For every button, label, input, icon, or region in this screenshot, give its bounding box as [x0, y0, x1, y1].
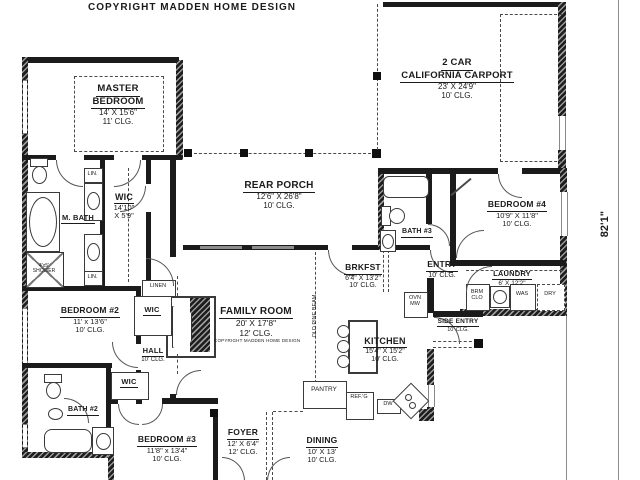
burner-icon [405, 394, 412, 401]
door-arc [176, 370, 201, 395]
room-label-brkfst: BRKFST 6'4" X 13'2" 10' CLG. [334, 263, 392, 290]
laundry-sink-bowl [493, 290, 507, 304]
room-label-bedroom2: BEDROOM #2 11' x 13'6" 10' CLG. [54, 306, 126, 334]
wall [419, 409, 431, 421]
side-entry-post [474, 339, 483, 348]
wall [383, 2, 565, 7]
wall [170, 394, 176, 404]
sink-bowl-icon [87, 243, 100, 261]
post [210, 409, 218, 417]
ovn-mw-label: OVN MW [405, 296, 425, 308]
porch-edge-line [184, 153, 376, 155]
room-label-bedroom3: BEDROOM #3 11'8" x 13'4" 10' CLG. [132, 435, 202, 463]
copyright-small: COPYRIGHT MADDEN HOME DESIGN [214, 338, 298, 343]
ceiling-break-dashed [177, 276, 179, 296]
window [23, 308, 27, 364]
window [559, 116, 566, 150]
sink-bowl-icon [96, 433, 111, 450]
room-label-bath3: BATH #3 [396, 228, 438, 238]
room-label-carport: 2 CAR CALIFORNIA CARPORT 23' X 24'9" 10'… [397, 58, 517, 101]
window [23, 424, 27, 448]
front-door-arc [267, 457, 290, 480]
beam-label: OLD PINE BEAM [312, 282, 320, 350]
room-label-bedroom4: BEDROOM #4 10'9" X 11'8" 10' CLG. [478, 200, 556, 228]
washer-label: WAS [512, 292, 532, 298]
room-label-side-entry: SIDE ENTRY 10' CLG. [434, 318, 482, 333]
door-arc [498, 174, 522, 198]
room-label-master: MASTER BEDROOM 14' X 15'6" 11' CLG. [77, 84, 159, 127]
overall-dimension-label: 82'1" [599, 199, 611, 249]
dw-label: DW [379, 402, 397, 408]
foyer-dining-dashed [266, 412, 268, 480]
wall [176, 60, 183, 160]
wall [558, 2, 566, 116]
wall [146, 160, 151, 184]
wall [433, 311, 483, 317]
porch-post [305, 149, 313, 157]
pantry-label: PANTRY [305, 386, 343, 393]
carport-dashed-line [500, 14, 562, 16]
room-label-hall: HALL 10' CLG. [134, 347, 172, 364]
door-arc [142, 404, 163, 425]
door-arc [114, 160, 141, 187]
dimension-line [618, 0, 619, 480]
tub-icon [44, 429, 92, 453]
ceiling-break-dashed [177, 354, 179, 374]
door-arc [146, 258, 174, 286]
wic2-label: WIC [138, 306, 166, 316]
room-label-bath2: BATH #2 [60, 406, 106, 416]
room-label-dining: DINING 10' X 13' 10' CLG. [297, 436, 347, 464]
wall [427, 278, 434, 313]
porch-post [372, 149, 381, 158]
tub-basin-icon [29, 197, 57, 247]
window [252, 246, 294, 249]
window [23, 80, 27, 134]
lin-label: LIN. [85, 172, 100, 178]
room-label-wic-master: WIC 14'10" X 5'9" [103, 192, 145, 221]
stool-icon [337, 325, 350, 338]
wall [84, 155, 114, 160]
carport-dashed-line [500, 161, 562, 163]
wall [27, 57, 179, 63]
wall [450, 260, 566, 266]
room-label-laundry: LAUNDRY 6' X 12'2" [486, 270, 538, 288]
room-label-family: FAMILY ROOM 20' X 17'8" 12' CLG. COPYRIG… [214, 306, 298, 343]
room-label-foyer: FOYER 12' X 6'4" 12' CLG. [220, 428, 266, 456]
stool-icon [337, 355, 350, 368]
wall [22, 363, 112, 368]
tub-icon [383, 176, 429, 198]
room-label-mbath: M. BATH [56, 214, 100, 224]
lin-label: LIN. [85, 275, 100, 281]
front-door-arc [222, 457, 245, 480]
wall [560, 168, 567, 192]
refg-label: REF.'G [347, 395, 371, 401]
wall [378, 168, 498, 174]
sink-bowl-icon [87, 192, 100, 210]
stool-icon [337, 340, 350, 353]
wall [108, 452, 114, 480]
wic3-label: WIC [114, 378, 144, 388]
side-entry-stoop-dashed [433, 347, 477, 349]
door-arc [56, 160, 83, 187]
dryer-label: DRY [539, 292, 561, 298]
room-label-rear-porch: REAR PORCH 12'6" X 26'8" 10' CLG. [236, 180, 322, 211]
wall [170, 160, 176, 257]
porch-post [184, 149, 192, 157]
carport-post [373, 72, 381, 80]
toilet-bowl-icon [389, 208, 405, 224]
wall [213, 412, 218, 480]
toilet-bowl-icon [32, 166, 47, 184]
porch-post [240, 149, 248, 157]
burner-icon [409, 402, 416, 409]
door-arc [118, 404, 139, 425]
window [428, 385, 435, 407]
toilet-bowl-icon [46, 382, 61, 399]
window [200, 246, 242, 249]
sink-bowl-icon [382, 234, 394, 249]
floor-plan: COPYRIGHT MADDEN HOME DESIGN 82'1" [0, 0, 640, 480]
dimension-extension-line [566, 316, 567, 480]
linen-label: LINEN [143, 283, 173, 289]
shower-label: 4'x5' SHOWER [27, 264, 61, 275]
door-arc [456, 230, 484, 258]
copyright-text: COPYRIGHT MADDEN HOME DESIGN [88, 2, 278, 13]
room-label-entry: ENTRY 10' CLG. [420, 260, 464, 279]
wall [427, 349, 434, 385]
room-label-kitchen: KITCHEN 15'4" X 15'2" 10' CLG. [356, 336, 414, 364]
brm-clo-label: BRM CLO [467, 290, 487, 302]
window [561, 192, 568, 236]
fireplace-masonry [190, 298, 210, 352]
dining-ceiling-dashed [273, 411, 303, 413]
wall [558, 150, 566, 170]
